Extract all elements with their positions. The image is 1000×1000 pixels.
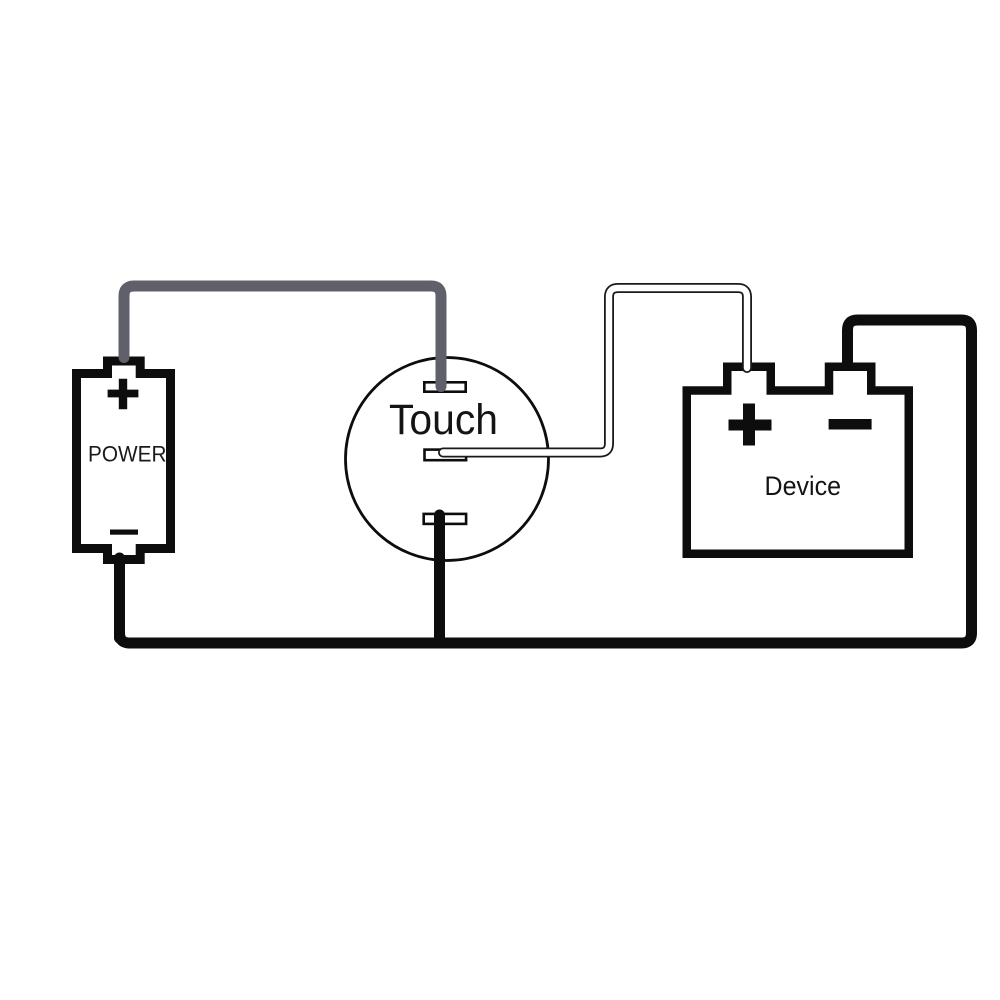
svg-text:Touch: Touch [389,397,498,444]
svg-text:Device: Device [765,471,842,501]
svg-text:POWER: POWER [88,442,167,467]
